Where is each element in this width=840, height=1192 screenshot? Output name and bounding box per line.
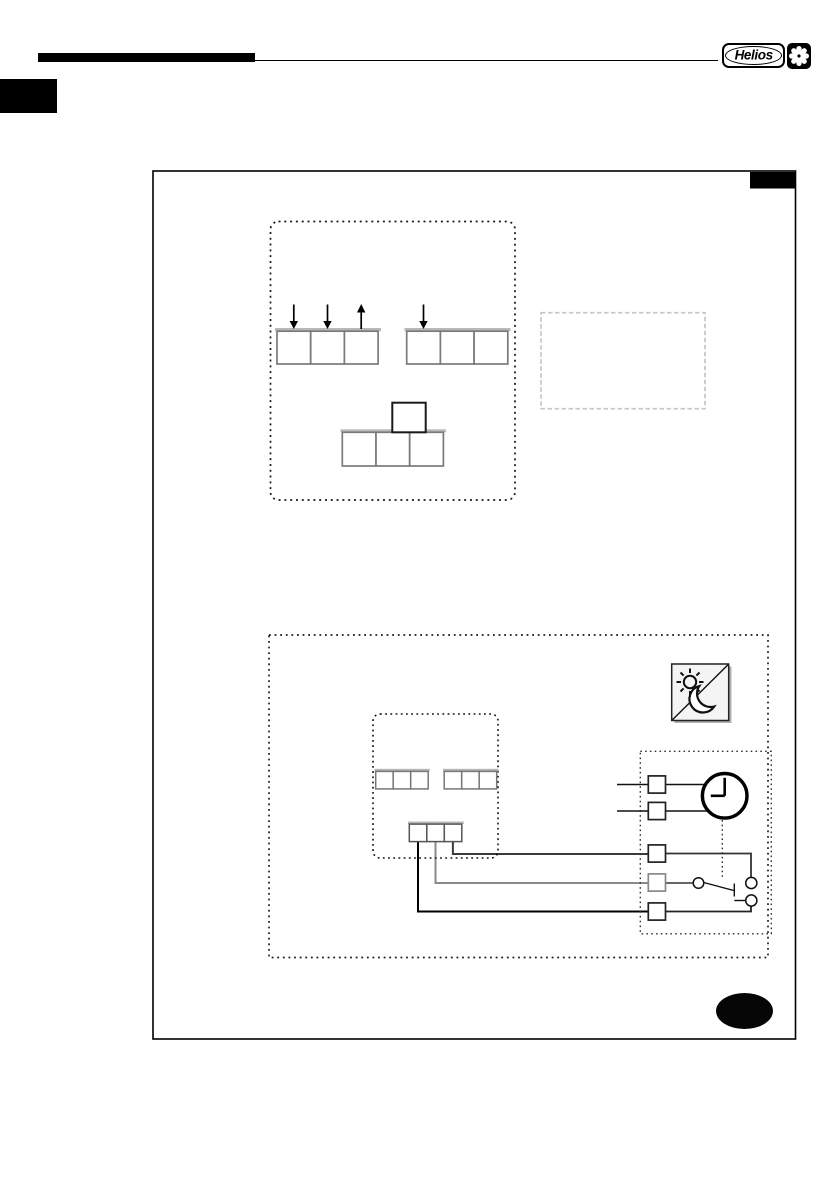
device-terminal-block [443, 769, 498, 789]
terminal-cell [440, 331, 474, 364]
terminal-cell [376, 771, 394, 789]
wire-top [453, 842, 650, 855]
down-arrow-icon [290, 305, 298, 330]
terminal-cell [410, 432, 444, 466]
terminal-cell [479, 771, 497, 789]
top-cell [392, 403, 425, 433]
up-arrow-icon [357, 304, 365, 329]
terminal-cell [277, 331, 311, 364]
terminal-cell [411, 771, 429, 789]
device-box [373, 714, 498, 858]
manual-page: Helios [0, 0, 840, 1192]
note-box [541, 313, 705, 409]
footer-oval [716, 993, 773, 1029]
terminal-cell [409, 824, 427, 842]
terminal-cell [444, 771, 462, 789]
frame-corner-tab [750, 172, 796, 189]
terminal-block-b [405, 328, 511, 364]
switch-blade [704, 883, 734, 891]
connection-wires [418, 842, 650, 912]
down-arrow-icon [419, 305, 427, 330]
switch-throw-contact [746, 895, 757, 906]
switch-pole-contact [693, 878, 704, 889]
switch-throw-contact [746, 877, 757, 888]
page-figure [0, 0, 840, 1192]
timer-terminal [648, 874, 665, 891]
clock-icon [702, 774, 747, 819]
controller-box [271, 222, 516, 501]
device-terminal-block [375, 769, 430, 789]
terminal-cell [311, 331, 345, 364]
terminal-cell [462, 771, 480, 789]
t-terminal-block [341, 403, 447, 466]
switch-wire [666, 854, 752, 878]
terminal-cell [376, 432, 410, 466]
wiring-box [269, 635, 771, 958]
terminal-cell [344, 331, 378, 364]
terminal-cell [393, 771, 411, 789]
day-night-icon [672, 664, 732, 723]
timer-terminal [648, 845, 665, 862]
page-frame [153, 171, 796, 1039]
changeover-switch [693, 877, 757, 906]
down-arrow-icon [323, 305, 331, 330]
terminal-cell [427, 824, 445, 842]
terminal-block-a [275, 328, 381, 364]
terminal-cell [407, 331, 441, 364]
timer-terminal [648, 903, 665, 920]
device-output-block [408, 822, 464, 842]
terminal-cell [474, 331, 508, 364]
terminal-cell [444, 824, 462, 842]
timer-box [617, 751, 771, 934]
timer-terminal [648, 802, 665, 819]
wire-middle [436, 842, 651, 884]
switch-wire [666, 906, 752, 911]
terminal-cell [342, 432, 376, 466]
timer-terminal [648, 776, 665, 793]
